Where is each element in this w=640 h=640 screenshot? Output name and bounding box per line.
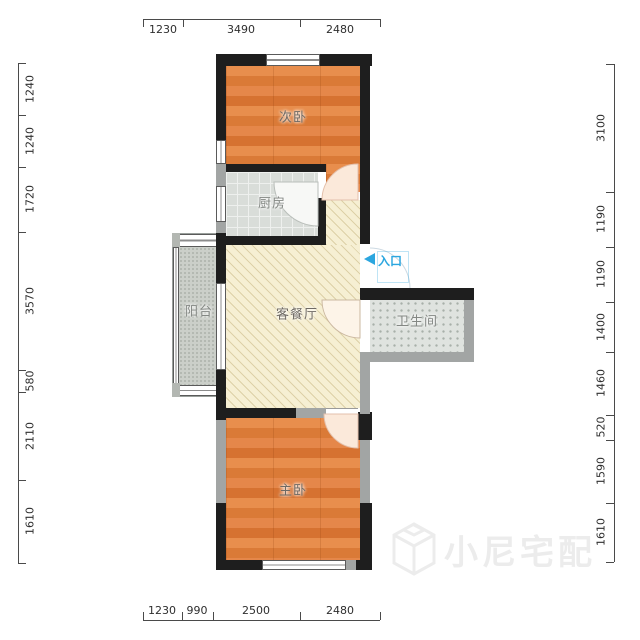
- dim-tick: [183, 19, 184, 27]
- wall-master-top: [216, 408, 296, 418]
- wall-bathroom-top: [360, 288, 474, 300]
- dim-tick: [18, 392, 26, 393]
- dim-tick: [606, 302, 614, 303]
- dim-tick: [182, 612, 183, 620]
- dim-label-right-5: 520: [595, 417, 608, 438]
- wall-right-gray-upper: [360, 362, 370, 414]
- dim-line-bottom: [143, 620, 380, 621]
- wall-bathroom-bottom: [360, 352, 474, 362]
- watermark: 小尼宅配: [392, 522, 596, 576]
- room-label-bathroom: 卫生间: [396, 311, 438, 330]
- wall-left-gray-2: [216, 222, 226, 233]
- watermark-text: 小尼宅配: [444, 525, 596, 574]
- window-left-kitchen: [216, 186, 226, 222]
- balcony-corner-column-bottom: [172, 383, 180, 397]
- dim-label-left-1: 1240: [24, 127, 37, 155]
- floor-plan-canvas: 次卧 厨房 客餐厅 阳台 卫生间 主卧 入口 1230 3490 2480 12…: [0, 0, 640, 640]
- wall-right-gray-lower: [360, 440, 370, 503]
- wall-left-gray-1: [216, 164, 226, 186]
- wall-bottom-right: [356, 560, 372, 570]
- dim-label-left-3: 3570: [24, 287, 37, 315]
- dim-label-right-3: 1400: [595, 313, 608, 341]
- window-top-bedroom: [266, 54, 320, 66]
- dim-tick: [143, 19, 144, 27]
- dim-label-right-7: 1610: [595, 518, 608, 546]
- dim-label-top-2: 2480: [326, 23, 354, 36]
- dim-label-top-1: 3490: [227, 23, 255, 36]
- wall-kitchen-right: [318, 196, 326, 245]
- window-left-bedroom: [216, 140, 226, 164]
- balcony-corner-column-top: [172, 233, 180, 247]
- window-bottom-master: [262, 560, 346, 570]
- dim-label-top-0: 1230: [149, 23, 177, 36]
- dim-tick: [606, 192, 614, 193]
- room-label-kitchen: 厨房: [258, 193, 286, 212]
- balcony-window-left: [173, 247, 179, 385]
- wall-master-top-gray: [296, 408, 326, 418]
- dim-tick: [606, 562, 614, 563]
- dim-tick: [143, 612, 144, 620]
- room-floor-living-strip: [326, 200, 360, 245]
- dim-tick: [606, 247, 614, 248]
- dim-tick: [18, 167, 26, 168]
- dim-tick: [606, 352, 614, 353]
- dim-tick: [380, 19, 381, 27]
- doorway-master-bedroom: [326, 408, 358, 418]
- dim-label-bottom-2: 2500: [242, 604, 270, 617]
- doorway-entrance: [360, 244, 370, 288]
- doorway-kitchen: [318, 172, 326, 198]
- dim-label-right-2: 1190: [595, 260, 608, 288]
- wall-master-door-corner: [358, 412, 372, 440]
- dim-tick: [300, 19, 301, 27]
- dim-line-right: [614, 64, 615, 562]
- entrance-label: 入口: [378, 252, 402, 269]
- room-label-living-dining: 客餐厅: [276, 304, 318, 323]
- cube-logo-icon: [392, 522, 436, 576]
- room-label-balcony: 阳台: [185, 301, 213, 320]
- dim-label-left-4: 580: [24, 371, 37, 392]
- dim-label-right-0: 3100: [595, 114, 608, 142]
- doorway-secondary-bedroom: [336, 192, 360, 200]
- dim-label-right-4: 1460: [595, 369, 608, 397]
- wall-left-upper: [216, 54, 226, 140]
- dim-tick: [18, 563, 26, 564]
- dim-tick: [18, 480, 26, 481]
- dim-label-right-1: 1190: [595, 205, 608, 233]
- dim-tick: [380, 612, 381, 620]
- room-label-secondary-bedroom: 次卧: [279, 107, 307, 126]
- dim-line-top: [143, 19, 380, 20]
- dim-line-left: [18, 63, 19, 563]
- room-floor-living-dining: [226, 245, 360, 408]
- dim-tick: [18, 115, 26, 116]
- dim-label-right-6: 1590: [595, 457, 608, 485]
- dim-tick: [300, 612, 301, 620]
- wall-bottom-left: [216, 560, 262, 570]
- dim-tick: [606, 64, 614, 65]
- dim-label-left-0: 1240: [24, 75, 37, 103]
- dim-tick: [606, 440, 614, 441]
- dim-label-left-2: 1720: [24, 185, 37, 213]
- wall-kitchen-top: [226, 164, 326, 172]
- dim-label-left-5: 2110: [24, 422, 37, 450]
- window-living-balcony: [216, 283, 226, 370]
- doorway-bathroom: [360, 300, 370, 352]
- dim-tick: [18, 63, 26, 64]
- wall-right-lower: [360, 503, 372, 560]
- room-label-master-bedroom: 主卧: [279, 480, 307, 499]
- wall-right-upper: [360, 54, 370, 244]
- wall-kitchen-bottom: [216, 236, 326, 245]
- wall-left-gray-3: [216, 420, 226, 503]
- dim-tick: [18, 232, 26, 233]
- dim-label-bottom-1: 990: [187, 604, 208, 617]
- dim-label-bottom-0: 1230: [148, 604, 176, 617]
- wall-bathroom-right: [464, 300, 474, 352]
- entrance-arrow-icon: [364, 253, 375, 265]
- dim-tick: [606, 503, 614, 504]
- dim-tick: [213, 612, 214, 620]
- dim-label-left-6: 1610: [24, 507, 37, 535]
- dim-label-bottom-3: 2480: [326, 604, 354, 617]
